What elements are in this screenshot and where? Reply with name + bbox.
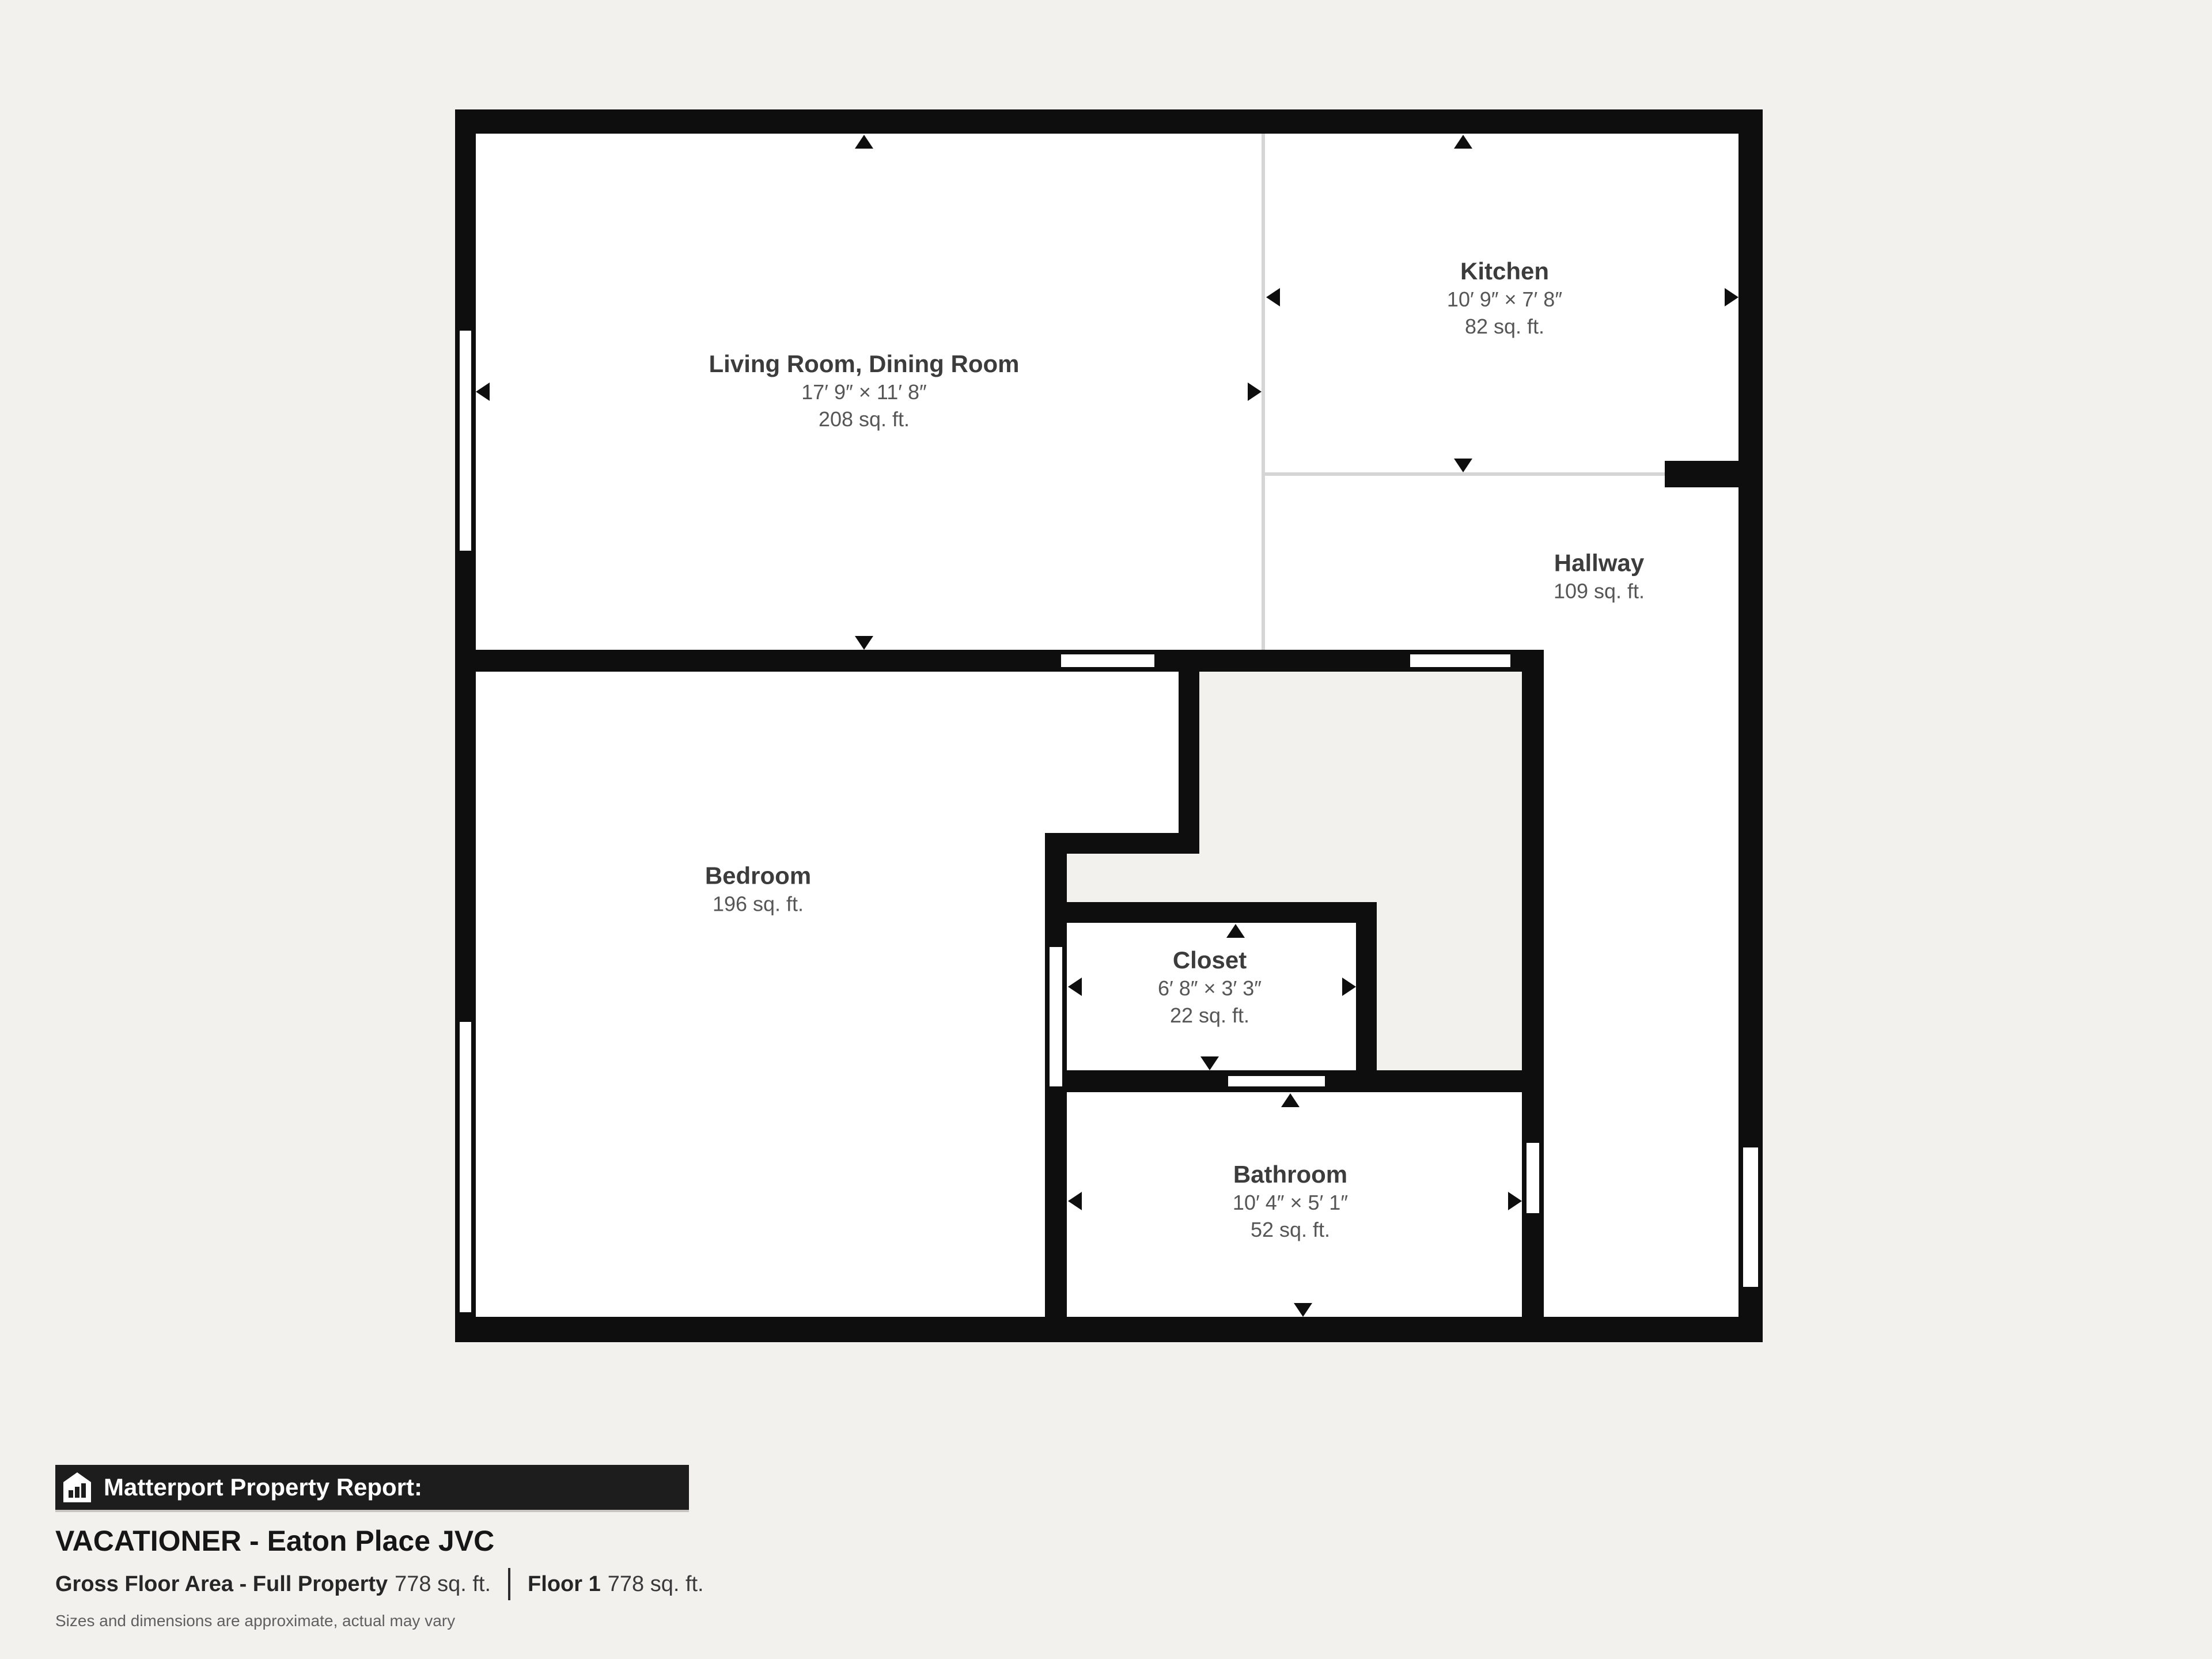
floor-plan: Living Room, Dining Room 17′ 9″ × 11′ 8″… [0,0,2212,1659]
room-name: Hallway [1554,549,1645,578]
measure-arrow-living-down [855,636,873,650]
room-area: 109 sq. ft. [1554,578,1645,605]
measure-arrow-kitchen-right [1725,288,1738,306]
room-dimensions: 17′ 9″ × 11′ 8″ [709,378,1020,406]
room-area: 22 sq. ft. [1158,1002,1262,1029]
window-bedroom-left [457,1020,474,1315]
room-label-closet: Closet 6′ 8″ × 3′ 3″ 22 sq. ft. [1158,946,1262,1029]
floor-area-value: 778 sq. ft. [608,1572,704,1597]
window-living-left [457,328,474,553]
room-area: 52 sq. ft. [1233,1216,1348,1243]
room-label-kitchen: Kitchen 10′ 9″ × 7′ 8″ 82 sq. ft. [1447,257,1562,340]
measure-arrow-bathroom-down [1294,1303,1312,1317]
gross-floor-area-value: 778 sq. ft. [395,1572,491,1597]
wall-outer-top [455,109,1763,134]
disclaimer-text: Sizes and dimensions are approximate, ac… [55,1612,455,1630]
room-name: Living Room, Dining Room [709,350,1020,378]
report-title: Matterport Property Report: [104,1474,422,1501]
room-name: Kitchen [1447,257,1562,286]
door-slot-closet [1047,945,1065,1089]
measure-arrow-closet-left [1068,978,1082,996]
divider-line [508,1568,510,1600]
room-name: Bathroom [1233,1160,1348,1189]
door-slot-hall-entry [1408,652,1513,669]
house-chart-icon [63,1472,91,1502]
floor-area-summary: Gross Floor Area - Full Property 778 sq.… [55,1568,704,1600]
measure-arrow-kitchen-left [1266,288,1280,306]
room-area: 196 sq. ft. [705,891,811,918]
room-label-living: Living Room, Dining Room 17′ 9″ × 11′ 8″… [709,350,1020,433]
wall-hallway-left [1522,650,1544,1342]
room-dimensions: 10′ 4″ × 5′ 1″ [1233,1189,1348,1216]
void-area [1199,672,1522,854]
wall-kitchen-stub [1665,461,1738,487]
floor-label: Floor 1 [528,1572,601,1597]
gross-floor-area-label: Gross Floor Area - Full Property [55,1572,388,1597]
measure-arrow-bathroom-right [1508,1192,1522,1210]
measure-arrow-bathroom-left [1068,1192,1082,1210]
room-area: 82 sq. ft. [1447,313,1562,340]
room-dimensions: 6′ 8″ × 3′ 3″ [1158,975,1262,1002]
open-boundary-kitchen-hallway [1265,472,1665,476]
measure-arrow-living-left [476,382,490,401]
void-area [1377,902,1522,1070]
wall-bedroom-jog [1045,833,1199,854]
measure-arrow-living-up [855,135,873,149]
matterport-floorplan-page: { "plan": { "rooms": [ { "id": "living",… [0,0,2212,1659]
wall-closet-top [1045,902,1377,923]
measure-arrow-kitchen-down [1454,459,1472,472]
open-boundary-living-kitchen [1262,134,1265,650]
property-name: VACATIONER - Eaton Place JVC [55,1524,494,1558]
measure-arrow-kitchen-up [1454,135,1472,149]
window-hallway-right [1741,1145,1760,1289]
room-label-bathroom: Bathroom 10′ 4″ × 5′ 1″ 52 sq. ft. [1233,1160,1348,1243]
measure-arrow-closet-right [1342,978,1356,996]
room-name: Bedroom [705,862,811,891]
measure-arrow-living-right [1248,382,1262,401]
report-header-bar: Matterport Property Report: [55,1465,689,1510]
wall-closet-right [1356,902,1377,1092]
wall-outer-bottom [455,1317,1763,1342]
room-name: Closet [1158,946,1262,975]
room-label-hallway: Hallway 109 sq. ft. [1554,549,1645,605]
door-slot-bathroom [1524,1141,1541,1215]
door-slot-bathroom-top [1226,1074,1327,1089]
room-dimensions: 10′ 9″ × 7′ 8″ [1447,286,1562,313]
measure-arrow-closet-up [1226,924,1245,938]
measure-arrow-closet-down [1200,1056,1219,1070]
void-area [1067,854,1522,902]
wall-bedroom-right-upper [1179,650,1199,854]
room-label-bedroom: Bedroom 196 sq. ft. [705,862,811,918]
measure-arrow-bathroom-up [1281,1093,1300,1107]
room-area: 208 sq. ft. [709,406,1020,433]
door-slot-bedroom-entry [1059,652,1157,669]
wall-bedroom-divider [455,650,1544,672]
